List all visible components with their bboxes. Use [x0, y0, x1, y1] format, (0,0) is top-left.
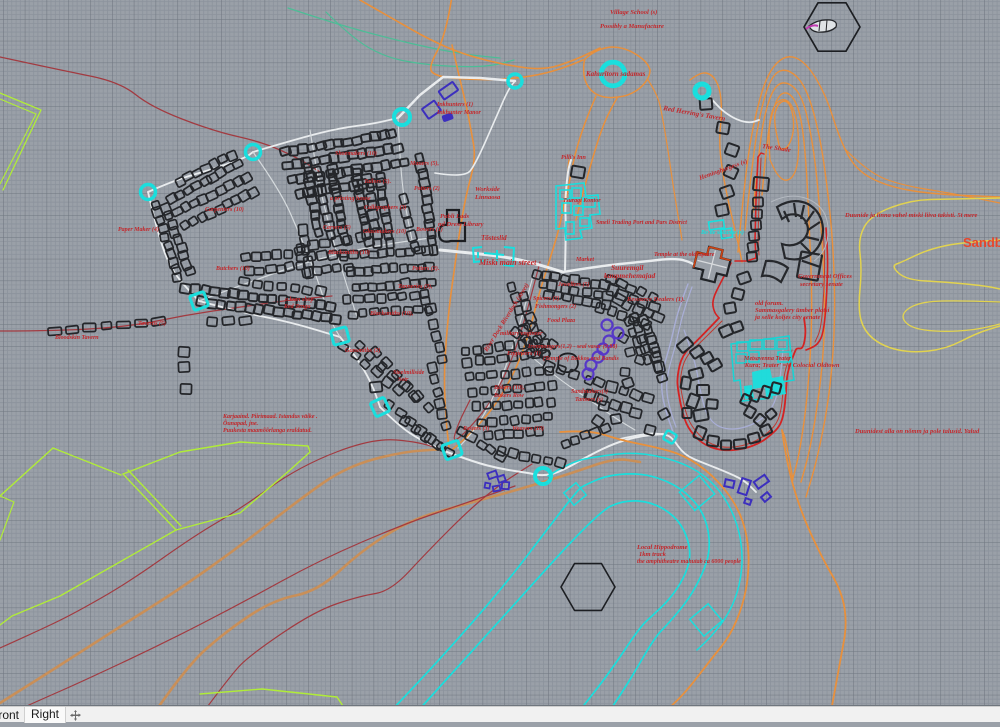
svg-text:Sotr: Sotr: [398, 377, 409, 383]
svg-text:Duunidest alla on nõmm ja pole: Duunidest alla on nõmm ja pole talusid. …: [854, 428, 980, 435]
svg-text:nd Dress Library: nd Dress Library: [438, 221, 484, 228]
svg-text:kaupmehemajad: kaupmehemajad: [604, 271, 656, 280]
svg-text:Mauers (5),: Mauers (5),: [409, 160, 439, 167]
svg-text:Bakers (10),: Bakers (10),: [493, 384, 524, 391]
svg-text:Inkhunters (1): Inkhunters (1): [436, 101, 473, 108]
svg-text:Resource Dealers (1).: Resource Dealers (1).: [626, 296, 685, 303]
svg-text:Potters (2): Potters (2): [414, 185, 440, 192]
svg-text:Fishmongers (2): Fishmongers (2): [535, 303, 576, 310]
svg-text:Smeli Trading Port and Pars Di: Smeli Trading Port and Pars District: [596, 220, 687, 226]
svg-text:Carvers (5): Carvers (5): [323, 224, 351, 231]
svg-text:Bowers (1): Bowers (1): [415, 226, 443, 233]
svg-text:Spicers (2): Spicers (2): [533, 295, 560, 302]
svg-text:Temple at the old square: Temple at the old square: [654, 252, 715, 258]
svg-text:Tsuragi Kontor: Tsuragi Kontor: [563, 198, 601, 204]
svg-text:military engineer: military engineer: [500, 331, 543, 337]
svg-text:Butchers (10): Butchers (10): [215, 265, 250, 272]
svg-text:the amphitheatre mahutab ca 60: the amphitheatre mahutab ca 6000 people: [637, 559, 741, 565]
svg-text:Puukesta maamõõrlanga eraldatu: Puukesta maamõõrlanga eraldatud.: [223, 428, 312, 434]
svg-text:Sandb: Sandb: [963, 235, 1000, 250]
svg-text:Gunsmiths (2): Gunsmiths (2): [345, 347, 381, 354]
svg-text:Jewellers (5): Jewellers (5): [557, 281, 590, 288]
svg-text:Sammasgalery ümber platsi: Sammasgalery ümber platsi: [755, 307, 830, 314]
svg-text:Tanners (s): Tanners (s): [575, 396, 603, 403]
svg-text:Karjaaind. Piirimaad. Istandus: Karjaaind. Piirimaad. Istandus väike .: [222, 414, 318, 420]
svg-text:Bloodskin Tavern: Bloodskin Tavern: [54, 335, 99, 341]
svg-text:Ironmongers(1,2) - seal vasar: Ironmongers(1,2) - seal vasar (9,88): [527, 343, 617, 350]
svg-text:'Kura; Teater' = a Colocial Ol: 'Kura; Teater' = a Colocial Oldtown: [743, 362, 840, 369]
svg-text:Kahuritorn sadamas: Kahuritorn sadamas: [585, 70, 646, 78]
svg-text:Village School (s): Village School (s): [610, 9, 657, 16]
svg-text:Blacksmiths (10): Blacksmiths (10): [327, 249, 370, 256]
svg-text:Calligraphers (3): Calligraphers (3): [364, 204, 407, 211]
svg-text:Glassmakers (10): Glassmakers (10): [363, 228, 406, 235]
svg-text:Red Tengu: Red Tengu: [283, 304, 311, 310]
svg-text:Blacksmiths (10),: Blacksmiths (10),: [369, 310, 413, 317]
svg-text:Linnaosa: Linnaosa: [474, 194, 501, 201]
svg-text:1km track: 1km track: [639, 551, 667, 558]
svg-text:Duunide ja linna vahel miski l: Duunide ja linna vahel miski liiva takis…: [844, 212, 977, 219]
svg-text:Paper Maker (4): Paper Maker (4): [118, 226, 159, 233]
svg-text:Bo ite sadama (s): Bo ite sadama (s): [700, 229, 744, 236]
svg-text:Sandmakers(s): Sandmakers(s): [571, 388, 608, 395]
svg-text:Tanneries (3),: Tanneries (3),: [398, 283, 432, 290]
svg-text:Engineers (1): Engineers (1): [506, 350, 541, 357]
svg-text:Carpenters (10): Carpenters (10): [205, 206, 244, 213]
svg-text:Pilli's Inn: Pilli's Inn: [561, 155, 587, 161]
svg-text:secretary senate: secretary senate: [799, 281, 843, 288]
svg-text:old forum.: old forum.: [755, 300, 784, 307]
svg-text:Inkhunter Manor: Inkhunter Manor: [436, 110, 482, 116]
svg-text:Workside: Workside: [475, 186, 500, 193]
svg-text:Local Hippodrome: Local Hippodrome: [636, 544, 687, 551]
svg-text:Bakers Row: Bakers Row: [493, 393, 525, 399]
svg-text:Taverns (5): Taverns (5): [138, 320, 166, 327]
svg-text:a loan shop: a loan shop: [285, 297, 314, 303]
svg-text:a printing house: a printing house: [330, 196, 371, 202]
svg-text:Steelmillside: Steelmillside: [393, 370, 425, 376]
svg-text:Market: Market: [575, 257, 594, 263]
svg-text:Weavers (10): Weavers (10): [512, 425, 544, 432]
svg-text:Tõsteslid: Tõsteslid: [481, 234, 507, 242]
svg-text:Food Plaza: Food Plaza: [547, 318, 575, 324]
svg-text:Õunapad, jne.: Õunapad, jne.: [223, 419, 259, 427]
svg-text:Tailors (5).: Tailors (5).: [364, 178, 392, 185]
svg-text:Publi Lads: Publi Lads: [440, 213, 470, 220]
svg-text:Miski main street: Miski main street: [478, 258, 537, 267]
svg-text:ja selle koljes city senate: ja selle koljes city senate: [754, 314, 820, 321]
svg-text:Government Offices: Government Offices: [798, 273, 852, 280]
svg-text:Possibly a Manufacture: Possibly a Manufacture: [600, 23, 664, 30]
svg-text:(Temple of Bakkos and Bandis: (Temple of Bakkos and Bandis: [543, 355, 619, 362]
svg-text:Shoemakers (10): Shoemakers (10): [335, 150, 377, 157]
svg-text:Potters (2).: Potters (2).: [412, 265, 440, 272]
svg-text:Resters (3): Resters (3): [462, 425, 490, 432]
